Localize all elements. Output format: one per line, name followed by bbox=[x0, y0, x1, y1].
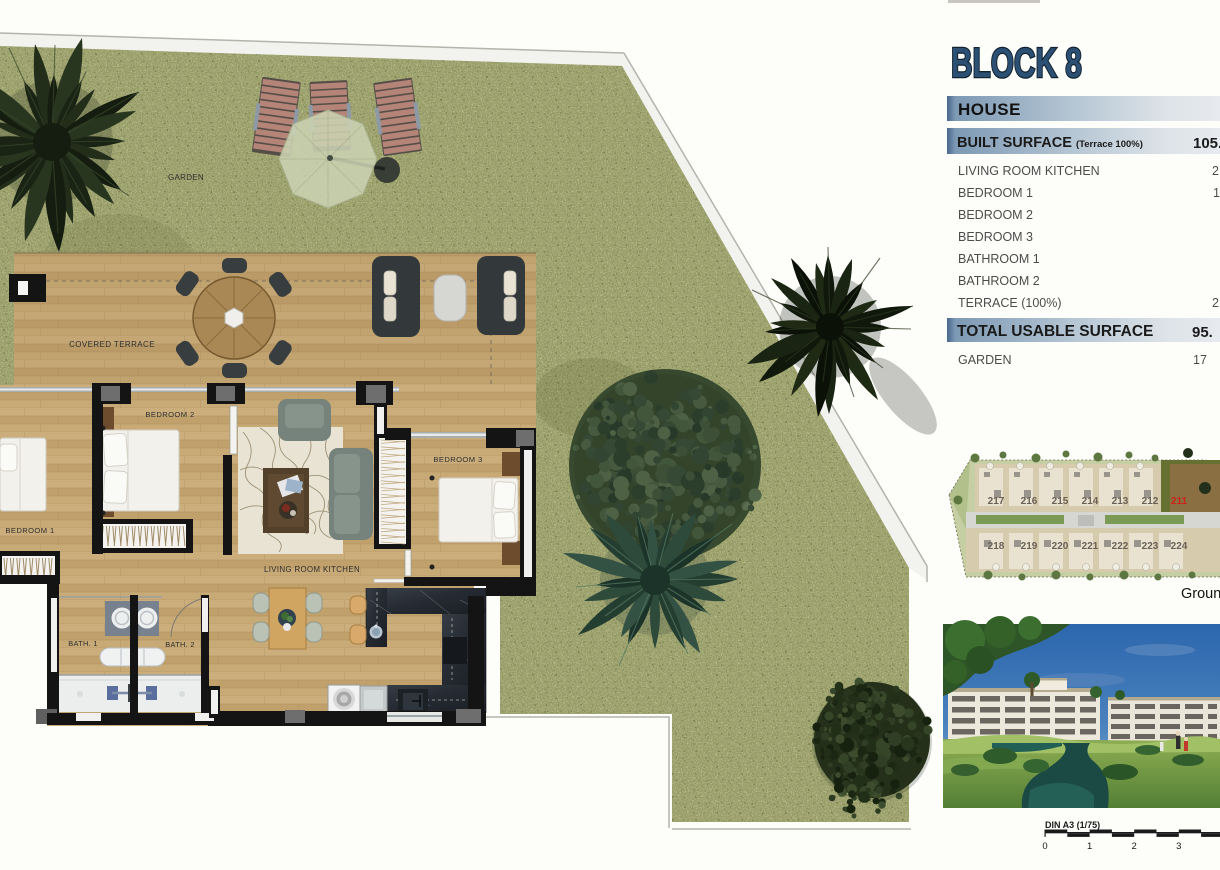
svg-text:223: 223 bbox=[1142, 541, 1159, 552]
svg-text:2: 2 bbox=[1212, 164, 1219, 178]
svg-text:BEDROOM 3: BEDROOM 3 bbox=[433, 455, 482, 464]
svg-text:DIN A3 (1/75): DIN A3 (1/75) bbox=[1045, 820, 1100, 830]
svg-text:TOTAL USABLE SURFACE: TOTAL USABLE SURFACE bbox=[957, 323, 1153, 340]
svg-text:224: 224 bbox=[1171, 541, 1188, 552]
svg-text:GARDEN: GARDEN bbox=[958, 353, 1011, 367]
svg-text:17: 17 bbox=[1193, 353, 1207, 367]
svg-text:BEDROOM 2: BEDROOM 2 bbox=[145, 410, 194, 419]
svg-text:BUILT SURFACE: BUILT SURFACE bbox=[957, 135, 1072, 151]
svg-text:GARDEN: GARDEN bbox=[168, 173, 204, 182]
svg-text:220: 220 bbox=[1052, 541, 1069, 552]
svg-text:216: 216 bbox=[1021, 496, 1038, 507]
svg-text:BATHROOM 2: BATHROOM 2 bbox=[958, 274, 1040, 288]
svg-text:BEDROOM 3: BEDROOM 3 bbox=[958, 230, 1033, 244]
svg-text:BATH. 1: BATH. 1 bbox=[68, 639, 97, 648]
svg-text:3: 3 bbox=[1176, 841, 1181, 852]
svg-text:0: 0 bbox=[1042, 841, 1047, 852]
svg-text:219: 219 bbox=[1021, 541, 1038, 552]
svg-text:BEDROOM 1: BEDROOM 1 bbox=[5, 526, 54, 535]
svg-text:BATHROOM 1: BATHROOM 1 bbox=[958, 252, 1040, 266]
svg-text:218: 218 bbox=[988, 541, 1005, 552]
svg-text:105.: 105. bbox=[1193, 135, 1220, 152]
svg-text:213: 213 bbox=[1112, 496, 1129, 507]
svg-text:95.: 95. bbox=[1192, 324, 1213, 341]
svg-text:COVERED TERRACE: COVERED TERRACE bbox=[69, 340, 155, 349]
svg-text:215: 215 bbox=[1052, 496, 1069, 507]
svg-text:BEDROOM 2: BEDROOM 2 bbox=[958, 208, 1033, 222]
svg-text:217: 217 bbox=[988, 496, 1005, 507]
svg-text:BATH. 2: BATH. 2 bbox=[165, 640, 194, 649]
svg-text:TERRACE (100%): TERRACE (100%) bbox=[958, 296, 1062, 310]
svg-text:HOUSE: HOUSE bbox=[958, 100, 1021, 119]
svg-text:211: 211 bbox=[1171, 496, 1188, 507]
svg-text:(Terrace 100%): (Terrace 100%) bbox=[1076, 139, 1143, 150]
svg-text:LIVING ROOM KITCHEN: LIVING ROOM KITCHEN bbox=[958, 164, 1100, 178]
svg-text:2: 2 bbox=[1132, 841, 1137, 852]
svg-text:212: 212 bbox=[1142, 496, 1159, 507]
svg-text:1: 1 bbox=[1087, 841, 1092, 852]
svg-text:2: 2 bbox=[1212, 296, 1219, 310]
svg-text:BEDROOM 1: BEDROOM 1 bbox=[958, 186, 1033, 200]
svg-text:LIVING ROOM KITCHEN: LIVING ROOM KITCHEN bbox=[264, 565, 360, 574]
svg-text:Ground Floor: Ground Floor bbox=[1181, 586, 1220, 602]
svg-text:214: 214 bbox=[1082, 496, 1099, 507]
svg-text:222: 222 bbox=[1112, 541, 1129, 552]
svg-text:BLOCK 8: BLOCK 8 bbox=[951, 39, 1082, 86]
svg-text:221: 221 bbox=[1082, 541, 1099, 552]
svg-text:1: 1 bbox=[1213, 186, 1220, 200]
